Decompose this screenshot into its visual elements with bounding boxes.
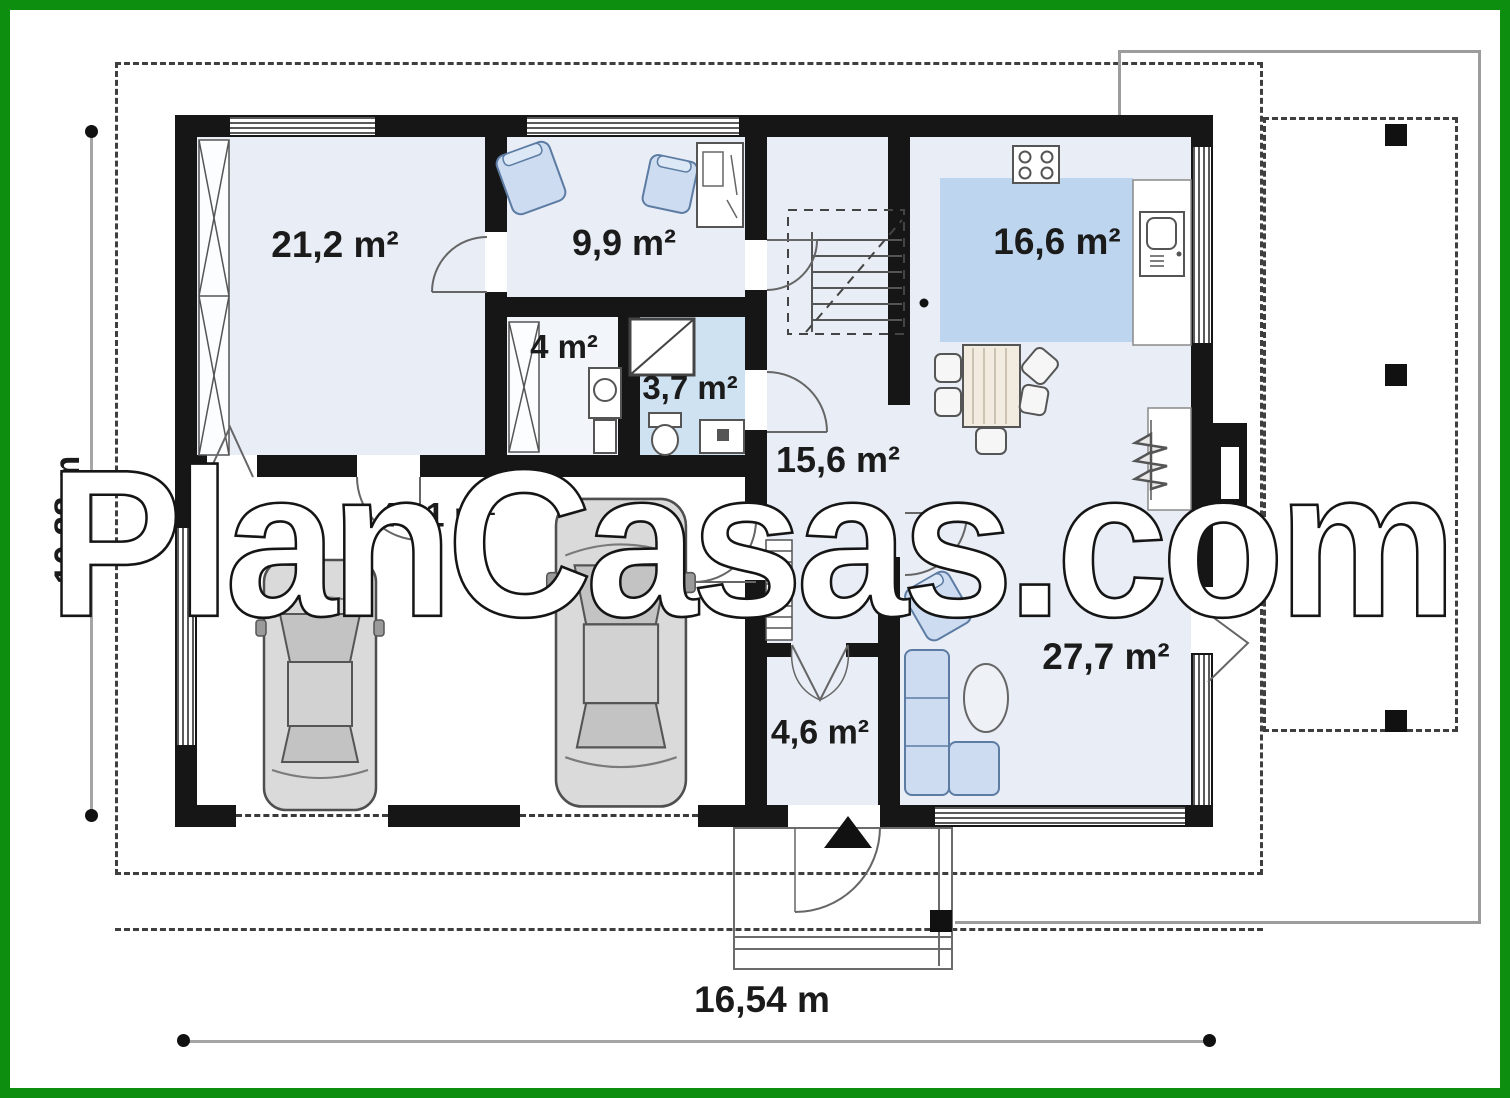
floor-plan-canvas: 21,2 m² 9,9 m² 4 m² 3,7 m² 15,6 m² 16,6 … <box>0 0 1510 1098</box>
room-label-bedroom: 21,2 m² <box>271 224 399 266</box>
armchair-icon <box>494 139 568 216</box>
desk-icon <box>697 143 743 227</box>
shower-icon <box>630 319 694 375</box>
sink-icon <box>1140 212 1184 276</box>
dining-table-icon <box>963 345 1020 427</box>
armchair-icon <box>641 154 699 215</box>
room-label-study: 9,9 m² <box>572 222 676 264</box>
entrance-arrow-icon <box>824 816 872 848</box>
room-label-kitchen: 16,6 m² <box>993 221 1121 263</box>
room-label-bathroom: 3,7 m² <box>642 369 737 407</box>
watermark: PlanCasas.com <box>48 438 1510 648</box>
room-label-wardrobe: 4 m² <box>530 328 598 366</box>
kitchen-dot <box>920 299 929 308</box>
room-label-entry: 4,6 m² <box>771 714 869 753</box>
wardrobe-icon <box>199 140 229 455</box>
oval-table-icon <box>964 664 1008 732</box>
stove-icon <box>1013 146 1059 183</box>
dim-label-width: 16,54 m <box>694 979 830 1021</box>
